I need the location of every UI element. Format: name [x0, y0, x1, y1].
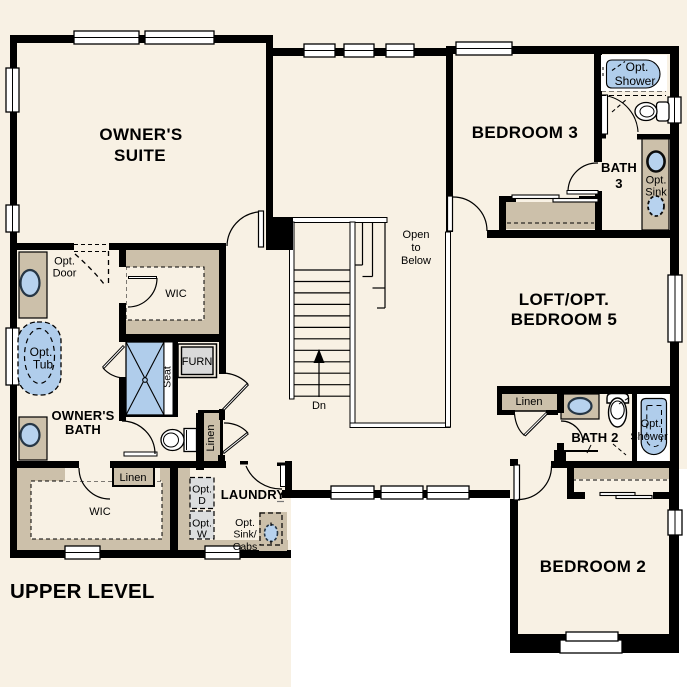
- svg-text:Shower: Shower: [615, 74, 656, 88]
- svg-text:Sink/: Sink/: [233, 529, 256, 541]
- svg-text:Open: Open: [403, 229, 430, 241]
- svg-text:Opt.: Opt.: [192, 484, 212, 496]
- svg-text:Door: Door: [53, 268, 77, 280]
- svg-text:LAUNDRY: LAUNDRY: [221, 487, 286, 502]
- svg-text:LOFT/OPT.: LOFT/OPT.: [519, 290, 609, 309]
- svg-text:Below: Below: [401, 255, 431, 267]
- svg-text:Shower: Shower: [630, 431, 668, 443]
- svg-text:Linen: Linen: [516, 396, 543, 408]
- svg-text:OWNER'S: OWNER'S: [99, 125, 182, 144]
- svg-text:Opt.: Opt.: [54, 256, 75, 268]
- svg-text:WIC: WIC: [165, 288, 186, 300]
- svg-text:BATH: BATH: [601, 160, 637, 175]
- svg-text:BATH: BATH: [65, 422, 101, 437]
- svg-text:Opt.: Opt.: [626, 60, 649, 74]
- svg-text:Linen: Linen: [120, 472, 147, 484]
- svg-text:D: D: [198, 495, 206, 507]
- svg-text:W: W: [197, 529, 207, 541]
- svg-text:to: to: [411, 242, 420, 254]
- svg-text:BEDROOM 5: BEDROOM 5: [511, 310, 618, 329]
- svg-text:Cabs: Cabs: [233, 541, 258, 553]
- svg-text:SUITE: SUITE: [114, 146, 166, 165]
- svg-text:FURN: FURN: [182, 356, 213, 368]
- svg-text:Seat: Seat: [162, 366, 174, 388]
- svg-text:WIC: WIC: [89, 506, 110, 518]
- svg-text:Dn: Dn: [312, 400, 326, 412]
- svg-text:3: 3: [615, 176, 622, 191]
- svg-text:UPPER LEVEL: UPPER LEVEL: [10, 580, 155, 603]
- svg-text:Opt.: Opt.: [641, 418, 662, 430]
- svg-text:Linen: Linen: [205, 425, 217, 452]
- svg-text:BEDROOM 3: BEDROOM 3: [472, 123, 579, 142]
- svg-text:Opt.: Opt.: [235, 517, 255, 529]
- svg-text:Opt.: Opt.: [646, 175, 667, 187]
- svg-text:OWNER'S: OWNER'S: [52, 408, 115, 423]
- svg-text:BEDROOM 2: BEDROOM 2: [540, 557, 647, 576]
- svg-text:Tub: Tub: [33, 358, 54, 372]
- svg-text:BATH 2: BATH 2: [571, 430, 618, 445]
